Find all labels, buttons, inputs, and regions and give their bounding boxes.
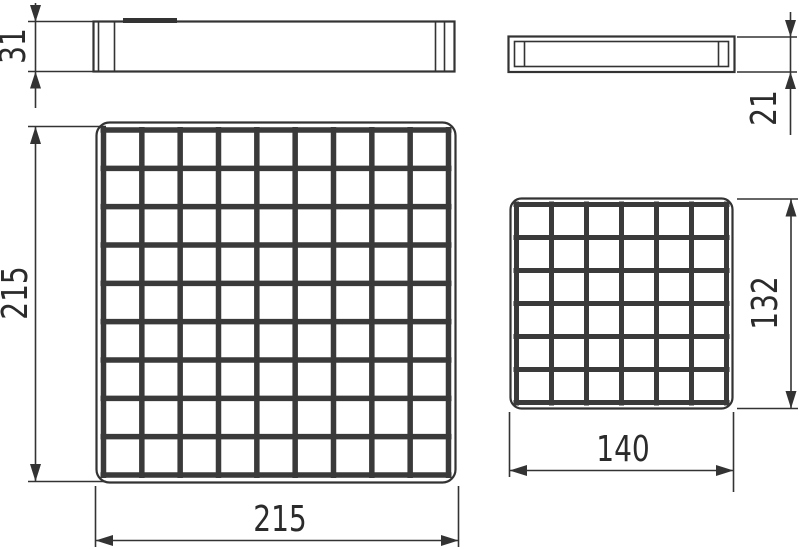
- small-grate-side-view: [509, 37, 735, 73]
- dim-label-large-grate-width: 215: [253, 502, 307, 538]
- dim-label-small-grate-height: 132: [748, 276, 784, 330]
- dim-label-large-side-height: 31: [0, 28, 32, 64]
- dim-31-lines: [28, 3, 93, 108]
- small-grate-mesh: [514, 202, 730, 406]
- drawing-linework: [0, 0, 800, 549]
- dim-label-small-side-height: 21: [747, 90, 783, 126]
- dim-label-small-grate-width: 140: [596, 432, 650, 468]
- small-side-inner-outline: [515, 42, 729, 67]
- large-grate-mesh: [101, 127, 452, 478]
- dim-215-left-lines: [28, 127, 106, 482]
- small-grate-top-view: [511, 199, 733, 409]
- large-grate-top-view: [97, 123, 456, 483]
- technical-drawing: 31 21 215 215 132 140: [0, 0, 800, 549]
- large-side-profile-outline: [94, 22, 455, 72]
- large-grate-outline: [97, 123, 456, 483]
- dim-label-large-grate-height: 215: [0, 266, 34, 320]
- large-grate-side-view: [94, 21, 455, 72]
